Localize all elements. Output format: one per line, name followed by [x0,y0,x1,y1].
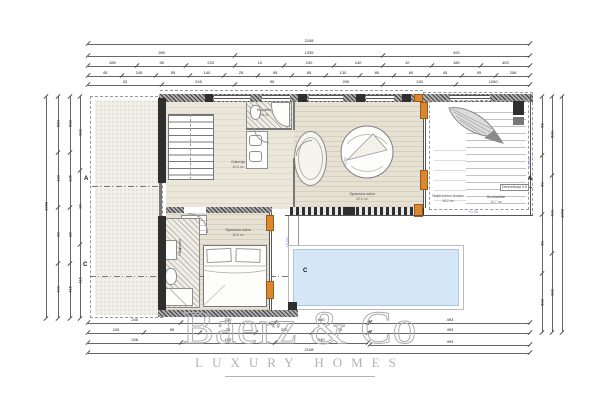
dimension-value: 33 [88,79,162,84]
dimension-value: 230 [181,317,274,322]
dimension-value: 95 [258,70,292,75]
dimension-value: 130 [56,169,61,189]
dimension-value: 245 [122,70,156,75]
dimension-value: 200 [550,282,555,302]
dimension-line [88,353,530,354]
dimension-value: 420 [550,204,555,224]
dimension-value: 500 [550,125,555,145]
dimension-value: 180 [432,60,481,65]
dimension-line [88,44,530,45]
dimension-value: 415 [68,280,73,300]
dimension-value: 493 [481,60,530,65]
dimension-line [88,323,368,324]
dimension-value: 45 [88,70,122,75]
dimension-value: 493 [383,50,530,55]
dimension-line [88,333,368,334]
annotation-layer: 2108280133549328095220102401401018049345… [0,0,600,400]
dimension-line [370,323,530,324]
dimension-value: 330 [256,327,312,332]
dimension-value: 65 [540,115,545,135]
dimension-value: 45 [428,70,462,75]
dimension-tick [78,316,83,321]
dimension-tick [560,330,565,335]
dimension-value: 2108 [88,347,530,352]
dimension-value: 240 [284,60,333,65]
room-area-label: 22.0 m² [330,197,394,201]
dimension-value: 60 [540,233,545,253]
dimension-value: 10 [235,60,284,65]
dimension-value: 200 [309,79,383,84]
dimension-value: 280 [88,50,235,55]
dimension-value: 493 [370,317,530,322]
elevation-label: +0.00 [343,157,348,167]
dimension-value: 95 [137,60,186,65]
room-area-label: 5.2 m² [178,219,182,283]
dimension-line [88,56,530,57]
dimension-value: 245 [162,79,236,84]
room-area-label: 4.6 m² [232,113,296,117]
dimension-value: 25 [224,70,258,75]
section-marker: C [303,268,307,274]
dimension-value: 208 [496,70,530,75]
dimension-tick [44,316,49,321]
level-note: Denivelacija 0.5 [500,184,529,191]
dimension-value: 1068 [560,204,565,224]
dimension-value: 493 [370,327,530,332]
dimension-tick [550,330,555,335]
elevation-label: +0.00 [527,157,532,167]
dimension-line [370,345,530,346]
dimension-value: 246 [88,337,181,342]
dimension-value: 10 [383,60,432,65]
dimension-value: 100 [181,337,274,342]
dimension-line [88,66,530,67]
dimension-value: 500 [540,292,545,312]
room-area-label: 10.8 m² [206,165,270,169]
dimension-value: 80 [56,224,61,244]
dimension-value: 1335 [235,50,382,55]
dimension-value: 130 [326,70,360,75]
dimension-value: 135 [68,169,73,189]
dimension-value: 95 [462,70,496,75]
floor-plan-canvas: 2108280133549328095220102401401018049345… [0,0,600,400]
dimension-value: 200 [78,123,83,143]
room-area-label: 15.8 m² [206,233,270,237]
dimension-value: 80 [360,70,394,75]
dimension-value: 50 [540,174,545,194]
section-marker: C [83,262,87,268]
dimension-tick [68,316,73,321]
dimension-value: 500 [68,113,73,133]
room-area-label: 12.7 m² [464,200,528,204]
dimension-value: 220 [186,60,235,65]
dimension-value: 140 [190,70,224,75]
section-marker: A [84,176,88,182]
dimension-value: 640 [275,317,368,322]
dimension-value: 493 [370,339,530,344]
dimension-value: 640 [275,337,368,342]
dimension-value: 88 [68,224,73,244]
dimension-line [370,333,530,334]
dimension-value: 550 [56,113,61,133]
elevation-label: +0.00 [468,209,478,214]
dimension-value: 95 [144,327,200,332]
dimension-value: 55 [156,70,190,75]
dimension-value: 70 [312,327,368,332]
dimension-value: 130 [383,79,457,84]
dimension-value: 240 [88,327,144,332]
elevation-label: +0.00 [285,237,290,247]
dimension-value: 85 [292,70,326,75]
dimension-value: 2108 [88,38,530,43]
dimension-value: 140 [334,60,383,65]
dimension-value: 1260 [456,79,530,84]
dimension-value: 245 [88,317,181,322]
dimension-value: 280 [88,60,137,65]
dimension-value: 60 [394,70,428,75]
dimension-tick [56,316,61,321]
dimension-value: 95 [235,79,309,84]
dimension-tick [540,330,545,335]
dimension-value: 1068 [44,197,49,217]
dimension-value: 20 [200,327,256,332]
dimension-value: 415 [78,271,83,291]
dimension-value: 420 [56,280,61,300]
dimension-line [88,343,368,344]
dimension-value: 26 [78,197,83,217]
section-marker: A [528,176,532,182]
